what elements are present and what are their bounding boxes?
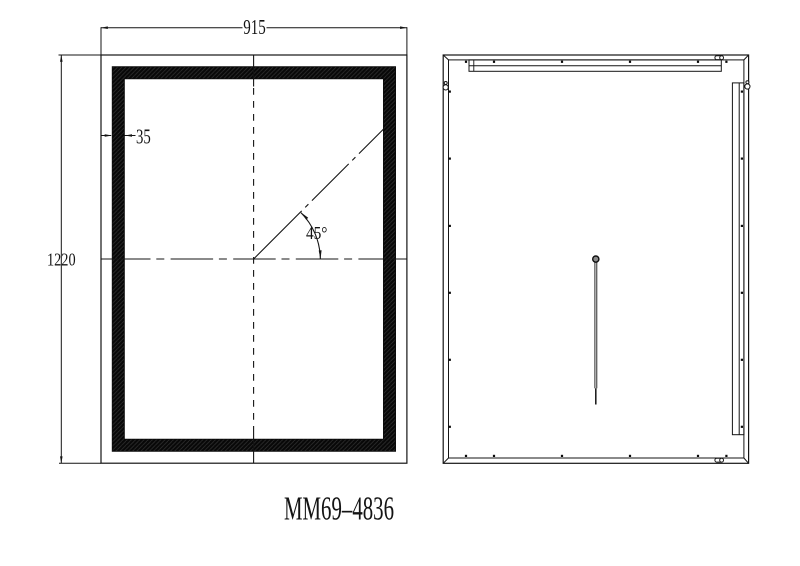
svg-text:45°: 45° [306, 223, 328, 243]
svg-text:MM69–4836: MM69–4836 [284, 491, 394, 528]
svg-text:1220: 1220 [47, 249, 76, 269]
svg-text:915: 915 [243, 15, 266, 39]
svg-text:35: 35 [136, 125, 151, 149]
